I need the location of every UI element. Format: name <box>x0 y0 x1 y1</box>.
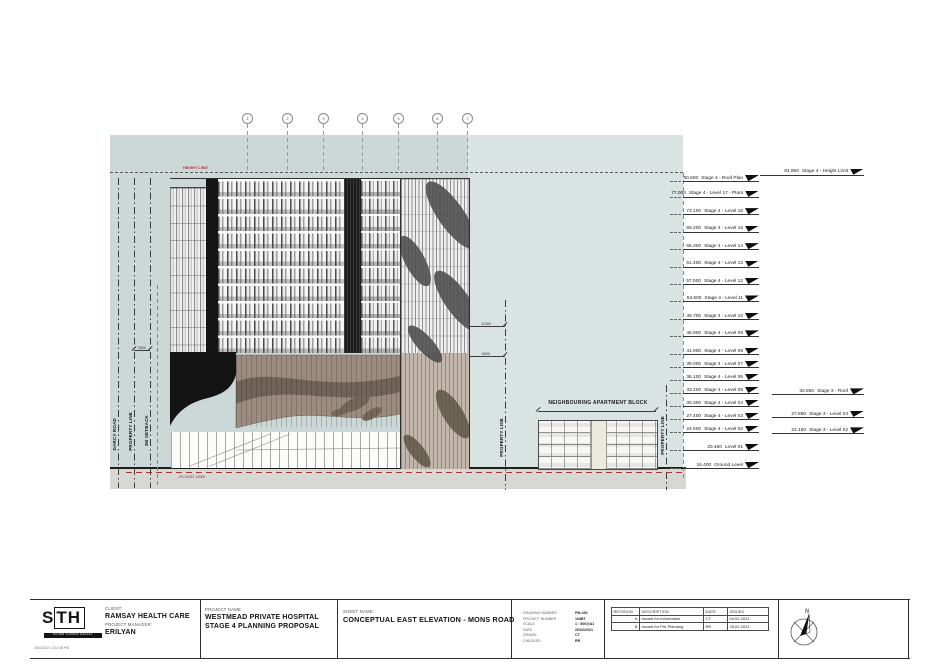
level-name: Level 01 <box>725 445 743 450</box>
level-name: Stage 4 - Level 06 <box>704 375 743 380</box>
titleblock-divider <box>908 600 909 658</box>
level-marker: 36.100Stage 4 - Level 06 <box>683 373 759 381</box>
level-value: 61.400 <box>686 261 701 266</box>
grid-bubble-label: 5 <box>397 116 399 121</box>
level-value: 69.200 <box>686 226 701 231</box>
drawing-info-row: DRAWING NUMBERPM-452 <box>523 611 594 615</box>
level-marker: 65.300Stage 4 - Level 14 <box>683 242 759 250</box>
level-line <box>683 468 759 469</box>
hospital-podium <box>170 352 400 468</box>
level-line <box>683 319 759 320</box>
level-text: 57.500Stage 4 - Level 12 <box>686 279 743 284</box>
project-manager-name: ERILYAN <box>105 629 190 637</box>
grid-line <box>398 124 399 172</box>
level-leader-dash <box>670 319 681 320</box>
level-line <box>683 336 759 337</box>
elevation-drawing-sheet: -FLOOD LINE HEIGHT LIMIT DARCY ROAD PROP… <box>0 0 940 664</box>
level-value: 39.000 <box>686 362 701 367</box>
project-manager-label: PROJECT MANAGER: <box>105 623 190 628</box>
level-leader-dash <box>670 354 681 355</box>
titleblock-divider <box>604 600 605 658</box>
level-line <box>772 394 864 395</box>
grid-bubble: 2 <box>282 113 293 124</box>
client-name: RAMSAY HEALTH CARE <box>105 613 190 621</box>
level-leader-dash <box>670 301 681 302</box>
project-name-line2: STAGE 4 PLANNING PROPOSAL <box>205 622 319 631</box>
revision-table: REVISIONDESCRIPTIONDATEISSUEDAIssued for… <box>611 607 769 631</box>
level-value: 53.600 <box>687 296 702 301</box>
client-section: CLIENT: RAMSAY HEALTH CARE PROJECT MANAG… <box>105 607 190 639</box>
project-section: PROJECT NAME: WESTMEAD PRIVATE HOSPITAL … <box>205 607 319 631</box>
level-value: 24.150 <box>791 428 806 433</box>
dimension-lower: 6000 <box>467 356 505 357</box>
level-name: Stage 4 - Level 10 <box>704 314 743 319</box>
tower-dark-band-1 <box>206 179 218 353</box>
info-value: PM-452 <box>575 611 588 615</box>
level-name: Stage 4 - Level 11 <box>704 296 743 301</box>
revision-header: DESCRIPTION <box>640 608 704 616</box>
level-line <box>683 249 759 250</box>
revision-date: RR <box>704 623 728 631</box>
level-value: 57.500 <box>686 279 701 284</box>
level-marker: 69.200Stage 4 - Level 15 <box>683 225 759 233</box>
level-line <box>683 406 759 407</box>
info-value: 1 : 500@A1 <box>575 622 594 626</box>
level-name: Stage 4 - Level 13 <box>704 261 743 266</box>
level-marker: 24.150Stage 3 - Level 02 <box>772 426 864 434</box>
level-value: 36.100 <box>686 375 701 380</box>
sth-logo: STH <box>42 608 85 628</box>
revision-header: ISSUED <box>728 608 769 616</box>
level-text: 49.700Stage 4 - Level 10 <box>686 314 743 319</box>
level-leader-dash <box>670 181 681 182</box>
grid-bubble-label: 6 <box>436 116 438 121</box>
level-name: Stage 4 - Level 04 <box>704 401 743 406</box>
level-value: 20.450 <box>707 445 722 450</box>
level-marker: 73.100Stage 4 - Level 16 <box>683 207 759 215</box>
info-value: 26/02/2021 <box>575 628 593 632</box>
level-spine-line <box>683 173 684 481</box>
logo-box: TH <box>54 607 85 629</box>
revision-desc: Issued for Information <box>640 615 704 623</box>
neighbour-apartment-block <box>538 420 658 470</box>
height-limit-label: HEIGHT LIMIT <box>183 166 208 170</box>
level-name: Stage 4 - Level 16 <box>704 209 743 214</box>
setback-line <box>150 178 151 488</box>
property-line-left-label: PROPERTY LINE <box>128 412 133 451</box>
dimension-upper: 11000 <box>467 326 505 327</box>
level-text: 30.300Stage 4 - Level 04 <box>686 401 743 406</box>
tower-dark-band-2 <box>344 179 361 353</box>
grid-bubble: 6 <box>432 113 443 124</box>
level-line <box>683 419 759 420</box>
facade-blade <box>400 178 470 469</box>
level-text: 45.800Stage 4 - Level 09 <box>686 331 743 336</box>
tower-facade-left <box>170 187 206 354</box>
level-name: Stage 3 - Roof <box>817 389 848 394</box>
level-line <box>683 393 759 394</box>
grid-line <box>323 124 324 172</box>
revision-header: DATE <box>704 608 728 616</box>
level-leader-dash <box>670 393 681 394</box>
revision-desc: Issued for Pre-Planning <box>640 623 704 631</box>
grid-bubble: 1 <box>242 113 253 124</box>
drawing-info-row: SCALE1 : 500@A1 <box>523 622 594 626</box>
level-value: 65.300 <box>686 244 701 249</box>
level-marker: 81.950Stage 4 - Height Limit <box>760 168 864 176</box>
project-name-line1: WESTMEAD PRIVATE HOSPITAL <box>205 613 319 622</box>
level-value: 80.500 <box>683 176 698 181</box>
level-text: 69.200Stage 4 - Level 15 <box>686 226 743 231</box>
grid-bubble: 7 <box>462 113 473 124</box>
level-line <box>683 232 759 233</box>
grid-bubble: 3 <box>318 113 329 124</box>
level-value: 81.950 <box>784 169 799 174</box>
drawing-info-row: DATE26/02/2021 <box>523 628 594 632</box>
level-leader-dash <box>670 468 681 469</box>
level-text: 73.100Stage 4 - Level 16 <box>686 209 743 214</box>
level-marker: 41.900Stage 4 - Level 08 <box>683 347 759 355</box>
level-line <box>772 417 864 418</box>
level-marker: 49.700Stage 4 - Level 10 <box>683 312 759 320</box>
level-text: 39.000Stage 4 - Level 07 <box>686 362 743 367</box>
level-text: 81.950Stage 4 - Height Limit <box>784 169 848 174</box>
grid-bubble-label: 3 <box>322 116 324 121</box>
level-text: 80.500Stage 4 - Roof Plan <box>683 176 743 181</box>
level-name: Stage 4 - Level 14 <box>704 244 743 249</box>
level-line <box>683 197 759 198</box>
level-text: 32.850Stage 3 - Roof <box>799 389 848 394</box>
level-leader-dash <box>670 249 681 250</box>
logo-tagline: SILVER THOMAS HANLEY <box>44 633 102 638</box>
level-name: Stage 4 - Level 15 <box>704 226 743 231</box>
level-text: 24.500Stage 4 - Level 02 <box>686 427 743 432</box>
sheet-name: CONCEPTUAL EAST ELEVATION - MONS ROAD <box>343 615 515 625</box>
height-limit-line <box>110 172 683 173</box>
level-marker: 61.400Stage 4 - Level 13 <box>683 260 759 268</box>
grid-bubble-label: 7 <box>466 116 468 121</box>
level-leader-dash <box>670 214 681 215</box>
level-value: 45.800 <box>686 331 701 336</box>
level-text: 24.150Stage 3 - Level 02 <box>791 428 848 433</box>
level-marker: 27.850Stage 3 - Level 03 <box>772 410 864 418</box>
level-leader-dash <box>670 419 681 420</box>
level-name: Stage 4 - Height Limit <box>802 169 848 174</box>
grid-line <box>247 124 248 172</box>
grid-bubble: 4 <box>357 113 368 124</box>
level-line <box>683 284 759 285</box>
revision-date: CT <box>704 615 728 623</box>
revision-header: REVISION <box>612 608 640 616</box>
logo-letter-s: S <box>42 608 54 627</box>
level-value: 27.400 <box>686 414 701 419</box>
level-value: 27.850 <box>791 412 806 417</box>
level-leader-dash <box>670 197 681 198</box>
level-line <box>683 214 759 215</box>
setback-dimension: 3000 <box>134 350 150 351</box>
revision-issued: 04.02.2021 <box>728 615 769 623</box>
level-leader-dash <box>670 450 681 451</box>
level-text: 77.000Stage 4 - Level 17 - Plant <box>671 191 743 196</box>
level-line <box>683 301 759 302</box>
level-value: 24.500 <box>686 427 701 432</box>
info-label: SCALE <box>523 622 575 626</box>
level-leader-dash <box>670 367 681 368</box>
level-line <box>683 380 759 381</box>
print-timestamp: 26/02/2021 3:11:38 PM <box>34 646 69 650</box>
info-value: CT <box>575 633 580 637</box>
level-marker: 27.400Stage 4 - Level 03 <box>683 412 759 420</box>
level-name: Stage 4 - Level 03 <box>704 414 743 419</box>
level-leader-dash <box>670 267 681 268</box>
revision-issued: 25.02.2021 <box>728 623 769 631</box>
info-label: DRAWING NUMBER <box>523 611 575 615</box>
podium-rib-overlay <box>236 355 400 427</box>
level-value: 16.400 <box>697 463 712 468</box>
level-leader-dash <box>670 432 681 433</box>
level-value: 73.100 <box>686 209 701 214</box>
level-text: 61.400Stage 4 - Level 13 <box>686 261 743 266</box>
neighbour-extent-dimension <box>538 411 656 412</box>
revision-rev: B <box>612 623 640 631</box>
level-name: Stage 4 - Level 12 <box>704 279 743 284</box>
level-line <box>683 450 759 451</box>
grid-line <box>467 124 468 172</box>
level-line <box>683 267 759 268</box>
north-arrow-icon: N <box>786 605 824 651</box>
level-leader-dash <box>670 232 681 233</box>
darcy-road-line <box>118 178 119 488</box>
level-leader-dash <box>670 284 681 285</box>
property-line-mid <box>505 300 506 490</box>
level-text: 65.300Stage 4 - Level 14 <box>686 244 743 249</box>
level-name: Stage 3 - Level 03 <box>809 412 848 417</box>
level-name: Stage 4 - Level 07 <box>704 362 743 367</box>
level-text: 41.900Stage 4 - Level 08 <box>686 349 743 354</box>
flood-line-label: -FLOOD LINE <box>178 474 205 479</box>
client-label: CLIENT: <box>105 607 190 612</box>
level-text: 16.400Ground Level <box>697 463 743 468</box>
flood-extent-line <box>157 285 158 488</box>
flood-line <box>126 472 683 473</box>
tower-facade-right <box>361 179 400 353</box>
level-leader-dash <box>670 380 681 381</box>
level-marker: 24.500Stage 4 - Level 02 <box>683 425 759 433</box>
level-line <box>683 354 759 355</box>
grid-line <box>437 124 438 172</box>
level-text: 53.600Stage 4 - Level 11 <box>687 296 743 301</box>
level-name: Stage 4 - Level 08 <box>704 349 743 354</box>
level-text: 20.450Level 01 <box>707 445 743 450</box>
level-marker: 20.450Level 01 <box>683 443 759 451</box>
info-label: CHECKED <box>523 639 575 643</box>
titleblock-divider <box>778 600 779 658</box>
level-marker: 53.600Stage 4 - Level 11 <box>683 294 759 302</box>
titleblock-divider <box>337 600 338 658</box>
drawing-info-row: DRAWNCT <box>523 633 594 637</box>
level-line <box>760 175 864 176</box>
neighbour-block-label: NEIGHBOURING APARTMENT BLOCK <box>517 400 679 406</box>
level-marker: 30.300Stage 4 - Level 04 <box>683 399 759 407</box>
property-line-right-label: PROPERTY LINE <box>660 416 665 455</box>
level-marker: 80.500Stage 4 - Roof Plan <box>683 174 759 182</box>
level-marker: 45.800Stage 4 - Level 09 <box>683 329 759 337</box>
darcy-road-label: DARCY ROAD <box>112 418 117 450</box>
info-label: DATE <box>523 628 575 632</box>
level-marker: 57.500Stage 4 - Level 12 <box>683 277 759 285</box>
tower-facade-main <box>218 179 344 353</box>
title-block: STH SILVER THOMAS HANLEY 26/02/2021 3:11… <box>30 599 910 659</box>
drawing-info-row: PROJECT NUMBER194BT <box>523 617 594 621</box>
level-line <box>772 433 864 434</box>
grid-bubble-label: 4 <box>361 116 363 121</box>
level-name: Stage 3 - Level 02 <box>809 428 848 433</box>
drawing-info-row: CHECKEDRR <box>523 639 594 643</box>
drawing-info-section: DRAWING NUMBERPM-452PROJECT NUMBER194BTS… <box>523 611 594 645</box>
leaf-pattern-icon <box>401 179 469 469</box>
titleblock-divider <box>200 600 201 658</box>
grid-line <box>362 124 363 172</box>
level-value: 49.700 <box>686 314 701 319</box>
level-text: 27.400Stage 4 - Level 03 <box>686 414 743 419</box>
level-marker: 32.850Stage 3 - Roof <box>772 387 864 395</box>
apartment-core <box>591 421 607 469</box>
level-text: 33.200Stage 4 - Level 05 <box>686 388 743 393</box>
level-name: Stage 4 - Roof Plan <box>701 176 743 181</box>
level-leader-dash <box>670 406 681 407</box>
info-label: DRAWN <box>523 633 575 637</box>
level-text: 27.850Stage 3 - Level 03 <box>791 412 848 417</box>
level-line <box>683 432 759 433</box>
level-value: 41.900 <box>686 349 701 354</box>
level-name: Ground Level <box>714 463 743 468</box>
revision-rev: A <box>612 615 640 623</box>
level-marker: 39.000Stage 4 - Level 07 <box>683 360 759 368</box>
level-marker: 16.400Ground Level <box>683 461 759 469</box>
level-line <box>683 367 759 368</box>
level-leader-dash <box>670 336 681 337</box>
info-label: PROJECT NUMBER <box>523 617 575 621</box>
level-text: 36.100Stage 4 - Level 06 <box>686 375 743 380</box>
sheet-section: SHEET NAME: CONCEPTUAL EAST ELEVATION - … <box>343 609 515 625</box>
grid-line <box>287 124 288 172</box>
property-line-left <box>134 178 135 488</box>
grid-bubble-label: 2 <box>286 116 288 121</box>
level-marker: 33.200Stage 4 - Level 05 <box>683 386 759 394</box>
level-marker: 77.000Stage 4 - Level 17 - Plant <box>683 190 759 198</box>
level-name: Stage 4 - Level 05 <box>704 388 743 393</box>
level-name: Stage 4 - Level 17 - Plant <box>689 191 743 196</box>
level-line <box>683 181 759 182</box>
level-name: Stage 4 - Level 02 <box>704 427 743 432</box>
setback-label: 3M SETBACK <box>144 415 149 446</box>
grid-bubble-label: 1 <box>246 116 248 121</box>
property-line-mid-label: PROPERTY LINE <box>499 418 504 457</box>
level-value: 30.300 <box>686 401 701 406</box>
level-name: Stage 4 - Level 09 <box>704 331 743 336</box>
grid-bubble: 5 <box>393 113 404 124</box>
info-value: 194BT <box>575 617 586 621</box>
level-value: 32.850 <box>799 389 814 394</box>
info-value: RR <box>575 639 580 643</box>
level-value: 33.200 <box>686 388 701 393</box>
